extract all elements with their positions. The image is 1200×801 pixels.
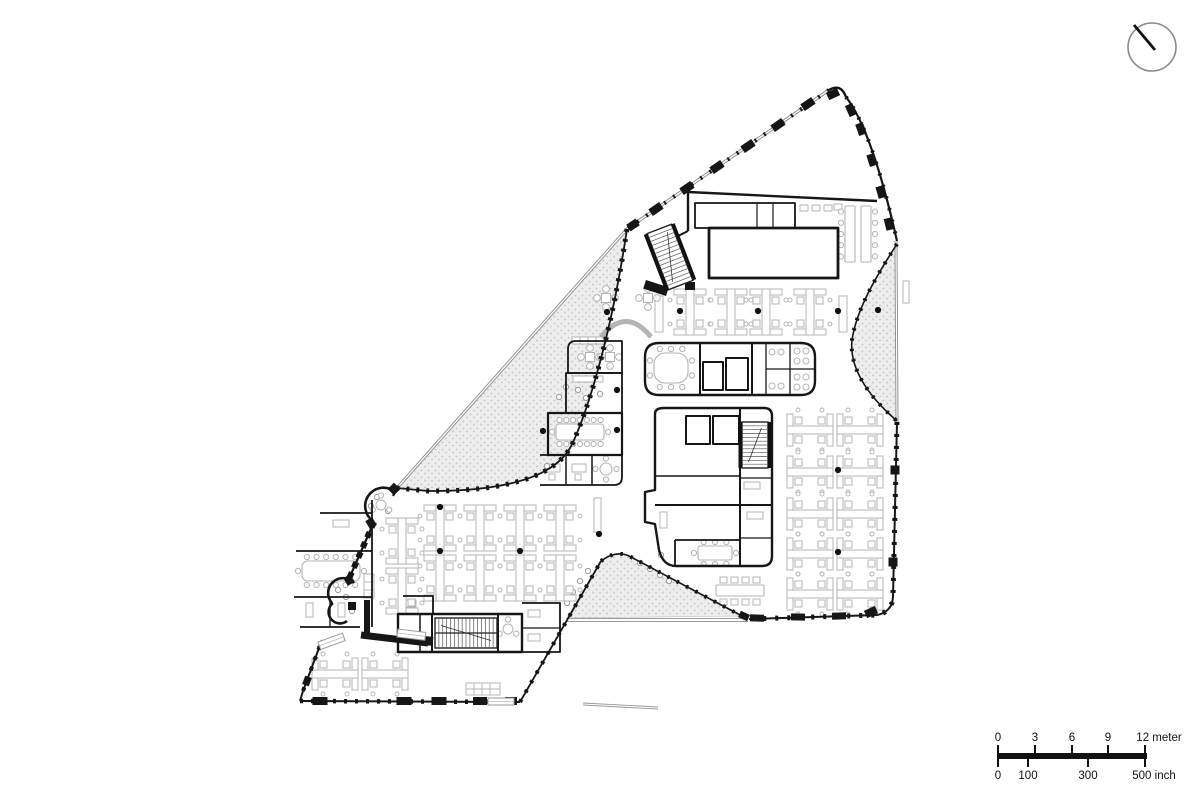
scale-tick <box>1144 759 1146 767</box>
scale-tick <box>1027 759 1029 767</box>
north-arrow <box>1122 16 1182 76</box>
scale-meter-label-3: 3 <box>1032 732 1038 744</box>
scale-inch-label-0: 0 <box>995 770 1001 782</box>
scale-tick <box>997 745 999 753</box>
floor-plan <box>0 0 1200 796</box>
scale-meter-label-12: 12 meter <box>1136 732 1181 744</box>
scale-tick <box>997 759 999 767</box>
scale-meter-label-9: 9 <box>1105 732 1111 744</box>
scale-tick <box>1071 745 1073 753</box>
scale-inch-label-500: 500 inch <box>1132 770 1175 782</box>
scale-tick <box>1034 745 1036 753</box>
scale-meter-label-0: 0 <box>995 732 1001 744</box>
scale-bar-rule <box>997 753 1147 759</box>
north-arrow-needle <box>1134 25 1155 50</box>
scale-bar: 0 3 6 9 12 meter 0 100 300 500 inch <box>996 732 1200 792</box>
floor-plan-drawing <box>0 0 1200 796</box>
scale-inch-label-100: 100 <box>1018 770 1037 782</box>
scale-meter-label-6: 6 <box>1069 732 1075 744</box>
scale-tick <box>1087 759 1089 767</box>
scale-tick <box>1144 745 1146 753</box>
scale-tick <box>1107 745 1109 753</box>
scale-inch-label-300: 300 <box>1078 770 1097 782</box>
